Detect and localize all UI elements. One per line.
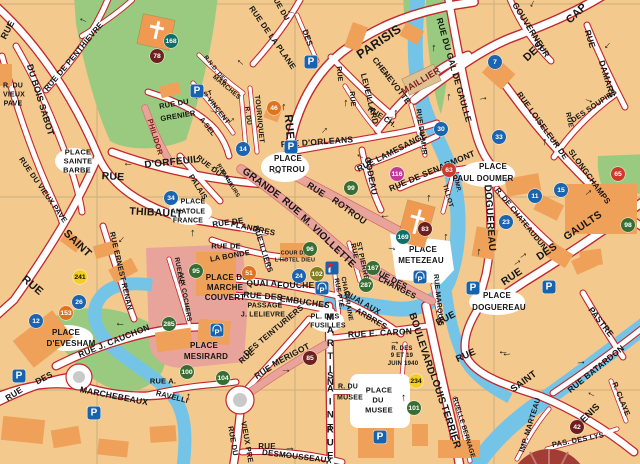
one-way-arrow-icon: → <box>414 125 426 137</box>
poi-marker: 98 <box>621 218 635 232</box>
poi-marker: 26 <box>72 295 86 309</box>
one-way-arrow-icon: → <box>538 136 550 148</box>
street-label: R. DU <box>338 384 358 391</box>
parking-icon: P <box>467 282 480 295</box>
street-label: L'HOTEL DIEU <box>275 258 315 264</box>
place-label: DU <box>372 396 383 404</box>
street-label: MUSEE <box>337 395 363 402</box>
street-label: PASSAGE <box>247 303 282 310</box>
parking-icon: P <box>285 141 298 154</box>
poi-marker: 23 <box>499 215 513 229</box>
poi-marker: 34 <box>164 191 178 205</box>
poi-marker: 116 <box>390 167 404 181</box>
one-way-arrow-icon: → <box>439 231 451 243</box>
street-label: RUE <box>325 425 335 464</box>
poi-marker: 63 <box>442 163 456 177</box>
one-way-arrow-icon: → <box>209 161 221 173</box>
poi-marker: 101 <box>407 401 421 415</box>
street-label: R. DU <box>3 83 23 90</box>
place-label: PAUL DOUMER <box>452 175 513 183</box>
poi-marker: 104 <box>216 371 230 385</box>
place-label: PLACE <box>483 292 511 300</box>
one-way-arrow-icon: → <box>280 364 292 376</box>
poi-marker: 7 <box>488 55 502 69</box>
one-way-arrow-icon: → <box>114 319 126 331</box>
place-label: PLACE <box>181 199 206 206</box>
one-way-arrow-icon: → <box>271 166 283 178</box>
poi-marker: 51 <box>242 266 256 280</box>
poi-marker: 167 <box>366 261 380 275</box>
one-way-arrow-icon: → <box>384 112 396 124</box>
street-label: RUE <box>101 171 124 183</box>
poi-marker: 96 <box>303 242 317 256</box>
place-label: COUVERT <box>205 294 246 302</box>
poi-marker: 234 <box>409 374 423 388</box>
poi-marker: 153 <box>59 306 73 320</box>
one-way-arrow-icon: → <box>427 42 439 54</box>
poi-marker: 95 <box>189 264 203 278</box>
place-label: PLACE <box>65 148 91 156</box>
one-way-arrow-icon: → <box>339 97 351 109</box>
place-label: D'EVESHAM <box>46 340 95 348</box>
street-label: RUE <box>281 114 295 140</box>
parking-icon: P <box>305 56 318 69</box>
poi-marker: 241 <box>73 270 87 284</box>
one-way-arrow-icon: → <box>397 392 409 404</box>
place-label: MUSEE <box>365 406 393 414</box>
one-way-arrow-icon: → <box>379 211 391 223</box>
one-way-arrow-icon: → <box>498 348 509 359</box>
place-label: METEZEAU <box>398 257 444 265</box>
covered-parking-icon: P <box>316 282 329 295</box>
one-way-arrow-icon: → <box>422 192 434 204</box>
poi-marker: 168 <box>164 34 178 48</box>
poi-marker: 285 <box>162 317 176 331</box>
street-label: J. LELIEVRE <box>241 312 285 319</box>
place-label: PLACE <box>366 386 392 394</box>
poi-marker: 46 <box>267 101 281 115</box>
poi-marker: 102 <box>310 267 324 281</box>
street-label: R. DU <box>242 106 251 125</box>
poi-marker: 85 <box>303 351 317 365</box>
one-way-arrow-icon: → <box>285 443 296 454</box>
street-label: RUE <box>335 66 343 82</box>
poi-marker: 83 <box>418 222 432 236</box>
parking-icon: P <box>374 431 387 444</box>
poi-marker: 169 <box>396 230 410 244</box>
street-label: 9 ET 19 <box>391 353 413 359</box>
one-way-arrow-icon: → <box>122 159 134 171</box>
poi-marker: 14 <box>236 142 250 156</box>
one-way-arrow-icon: → <box>346 332 358 344</box>
street-label: RUE DE <box>211 242 241 250</box>
poi-marker: 33 <box>492 130 506 144</box>
map-canvas: RUEDU BOIS SABOTRUE DE PENTHIEVRER. DUVI… <box>0 0 640 464</box>
place-label: ANATOLE <box>171 209 206 216</box>
place-label: PLACE <box>479 163 507 171</box>
street-label: RUE A. <box>150 377 176 385</box>
one-way-arrow-icon: → <box>477 92 490 105</box>
parking-icon: P <box>191 85 204 98</box>
place-label: PLACE <box>190 342 218 350</box>
street-label: JUIN 1940 <box>388 361 419 367</box>
one-way-arrow-icon: → <box>442 91 454 103</box>
place-label: PLACE <box>52 329 80 337</box>
one-way-arrow-icon: → <box>575 356 587 368</box>
parking-icon: P <box>88 407 101 420</box>
poi-marker: 30 <box>434 122 448 136</box>
one-way-arrow-icon: → <box>390 337 401 348</box>
place-label: MARCHE <box>207 284 243 292</box>
place-label: MESIRARD <box>184 353 228 361</box>
street-label: VIEUX <box>3 92 25 99</box>
poi-marker: 287 <box>359 278 373 292</box>
one-way-arrow-icon: → <box>182 391 194 403</box>
poi-marker: 65 <box>611 167 625 181</box>
street-label: QUAI A. <box>246 279 279 288</box>
poi-marker: 11 <box>528 189 542 203</box>
place-label: FUSILLES <box>310 323 345 330</box>
landmark-icon <box>326 262 339 275</box>
poi-marker: 99 <box>344 181 358 195</box>
poi-marker: 42 <box>570 420 584 434</box>
place-label: DOGUEREAU <box>472 304 526 312</box>
place-label: PLACE <box>274 155 302 163</box>
poi-marker: 24 <box>292 269 306 283</box>
one-way-arrow-icon: → <box>472 246 485 259</box>
parking-icon: P <box>13 370 26 383</box>
poi-marker: 100 <box>180 365 194 379</box>
poi-marker: 78 <box>150 49 164 63</box>
place-label: SAINTE <box>64 157 93 165</box>
place-label: PL. DES <box>311 314 340 321</box>
street-label: PAVE <box>4 101 23 108</box>
poi-marker: 12 <box>29 314 43 328</box>
covered-parking-icon: P <box>414 271 427 284</box>
covered-parking-icon: P <box>211 324 224 337</box>
one-way-arrow-icon: → <box>386 242 399 255</box>
one-way-arrow-icon: → <box>187 228 198 239</box>
poi-marker: 15 <box>554 183 568 197</box>
parking-icon: P <box>543 281 556 294</box>
place-label: FRANCE <box>173 218 203 225</box>
place-label: BARBE <box>63 166 91 174</box>
